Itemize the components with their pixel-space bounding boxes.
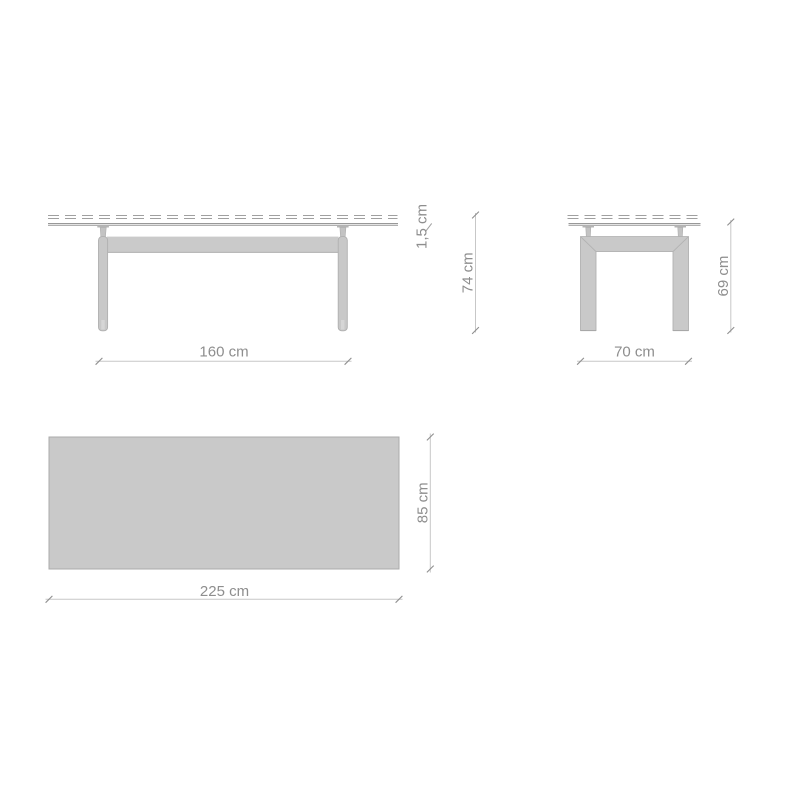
- svg-text:74 cm: 74 cm: [459, 252, 476, 293]
- svg-text:160 cm: 160 cm: [199, 344, 248, 361]
- svg-text:69 cm: 69 cm: [715, 256, 732, 297]
- svg-text:225 cm: 225 cm: [200, 583, 249, 600]
- svg-text:1,5 cm: 1,5 cm: [414, 204, 431, 249]
- svg-text:85 cm: 85 cm: [415, 482, 432, 523]
- svg-text:70 cm: 70 cm: [614, 344, 655, 361]
